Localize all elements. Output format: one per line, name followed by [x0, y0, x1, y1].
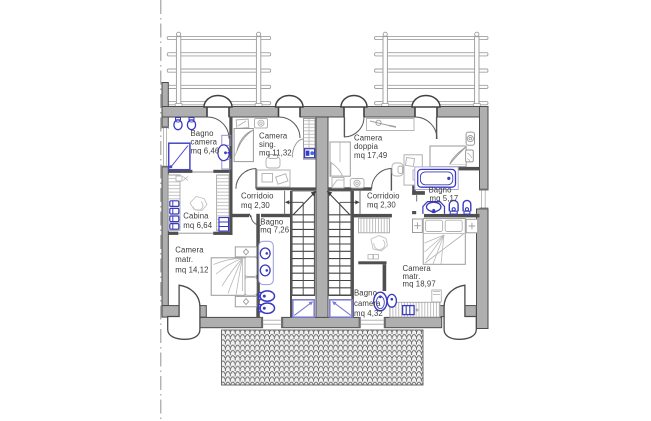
svg-text:Corridoio: Corridoio [367, 192, 400, 201]
svg-text:camera: camera [191, 138, 218, 147]
svg-text:mq 2,30: mq 2,30 [367, 201, 396, 210]
svg-text:doppia: doppia [354, 142, 379, 151]
svg-text:mq 6,64: mq 6,64 [183, 221, 212, 230]
svg-text:mq 5,17: mq 5,17 [430, 194, 459, 203]
svg-text:mq 4,32: mq 4,32 [354, 309, 383, 318]
svg-text:mq 2,30: mq 2,30 [241, 201, 270, 210]
svg-text:mq 17,49: mq 17,49 [354, 151, 387, 160]
svg-text:Camera: Camera [175, 245, 204, 254]
svg-text:camera: camera [354, 299, 381, 308]
svg-text:Bagno: Bagno [354, 289, 378, 298]
svg-text:mq 7,26: mq 7,26 [260, 226, 289, 235]
svg-text:mq 11,32: mq 11,32 [259, 148, 292, 157]
svg-text:mq 6,46: mq 6,46 [191, 147, 220, 156]
svg-text:mq 18,97: mq 18,97 [403, 279, 436, 288]
svg-text:Corridoio: Corridoio [241, 192, 274, 201]
svg-text:matr.: matr. [175, 255, 193, 264]
svg-text:mq 14,12: mq 14,12 [175, 265, 208, 274]
svg-text:Cabina: Cabina [183, 212, 209, 221]
